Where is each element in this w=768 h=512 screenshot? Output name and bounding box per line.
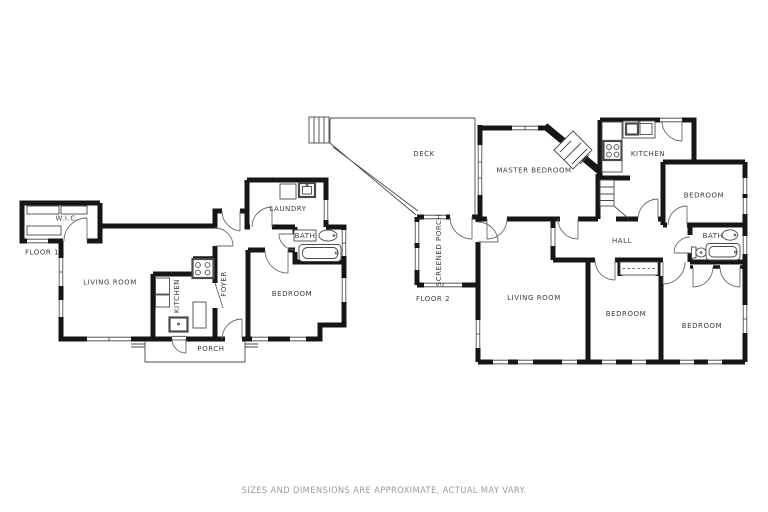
room-label-bedroom1: BEDROOM — [272, 290, 312, 298]
room-label-bedroom-se: BEDROOM — [682, 322, 722, 330]
deck-stairs-icon — [309, 117, 329, 143]
room-label-laundry: LAUNDRY — [269, 205, 306, 213]
room-label-porch: PORCH — [197, 345, 224, 353]
laundry-sink-icon — [299, 183, 315, 197]
room-label-living1: LIVING ROOM — [83, 279, 137, 287]
kitchen-sink-icon — [623, 121, 655, 138]
closet-icon — [620, 262, 658, 275]
floor1-title: FLOOR 1 — [25, 249, 59, 257]
disclaimer-text: SIZES AND DIMENSIONS ARE APPROXIMATE, AC… — [242, 485, 527, 495]
kitchen-sink-icon — [170, 318, 188, 332]
room-label-bedroom-s: BEDROOM — [606, 310, 646, 318]
room-label-bedroom-ne: BEDROOM — [684, 192, 724, 200]
floorplan-page: W.I.C. FLOOR 1 LIVING ROOM KITCHEN FOYER… — [0, 0, 768, 512]
deck-outline — [309, 117, 475, 215]
room-label-kitchen2: KITCHEN — [631, 150, 665, 158]
washer-icon — [280, 184, 296, 199]
bath-sink-icon — [722, 230, 738, 240]
room-label-kitchen1: KITCHEN — [173, 279, 181, 313]
bathtub-icon — [706, 244, 740, 261]
room-label-master-bedroom: MASTER BEDROOM — [496, 167, 571, 175]
room-label-foyer: FOYER — [220, 271, 228, 296]
toilet-icon — [692, 247, 707, 258]
floor1-walls — [22, 180, 344, 339]
floor2-title: FLOOR 2 — [416, 295, 450, 303]
room-label-wic: W.I.C. — [55, 215, 78, 223]
floor1-plan: W.I.C. FLOOR 1 LIVING ROOM KITCHEN FOYER… — [22, 180, 346, 362]
room-label-hall: HALL — [612, 237, 632, 245]
floor2-plan: DECK MASTER BEDROOM KITCHEN BEDROOM HALL… — [309, 117, 747, 364]
stove-icon — [604, 141, 622, 160]
room-label-living2: LIVING ROOM — [507, 294, 561, 302]
room-label-screened-porch: SCREENED PORCH — [435, 214, 443, 286]
stove-icon — [193, 259, 214, 278]
stairs-icon — [600, 180, 628, 218]
floorplan-canvas: W.I.C. FLOOR 1 LIVING ROOM KITCHEN FOYER… — [0, 0, 768, 512]
room-label-deck: DECK — [413, 150, 435, 158]
room-label-bath1: BATH — [295, 232, 316, 240]
bathtub-icon — [299, 245, 341, 262]
room-label-bath2: BATH — [703, 232, 724, 240]
